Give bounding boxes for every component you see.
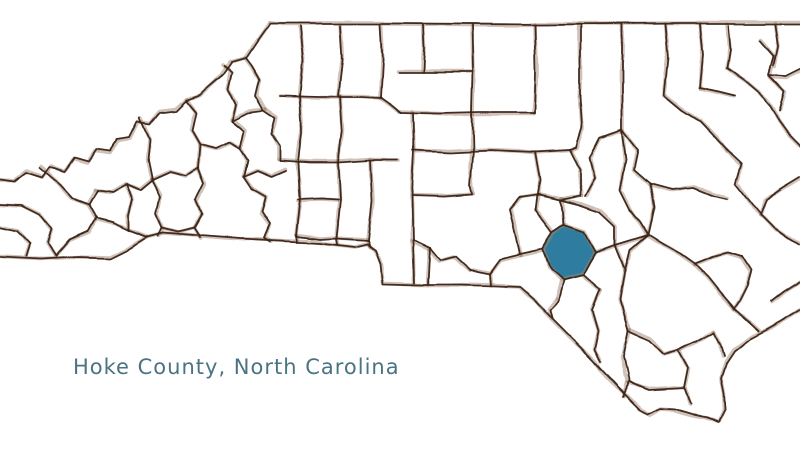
map-canvas: Hoke County, North Carolina	[0, 0, 800, 450]
nc-hoke-county-map: Hoke County, North Carolina	[0, 0, 800, 450]
map-caption-text: Hoke County, North Carolina	[73, 355, 400, 379]
